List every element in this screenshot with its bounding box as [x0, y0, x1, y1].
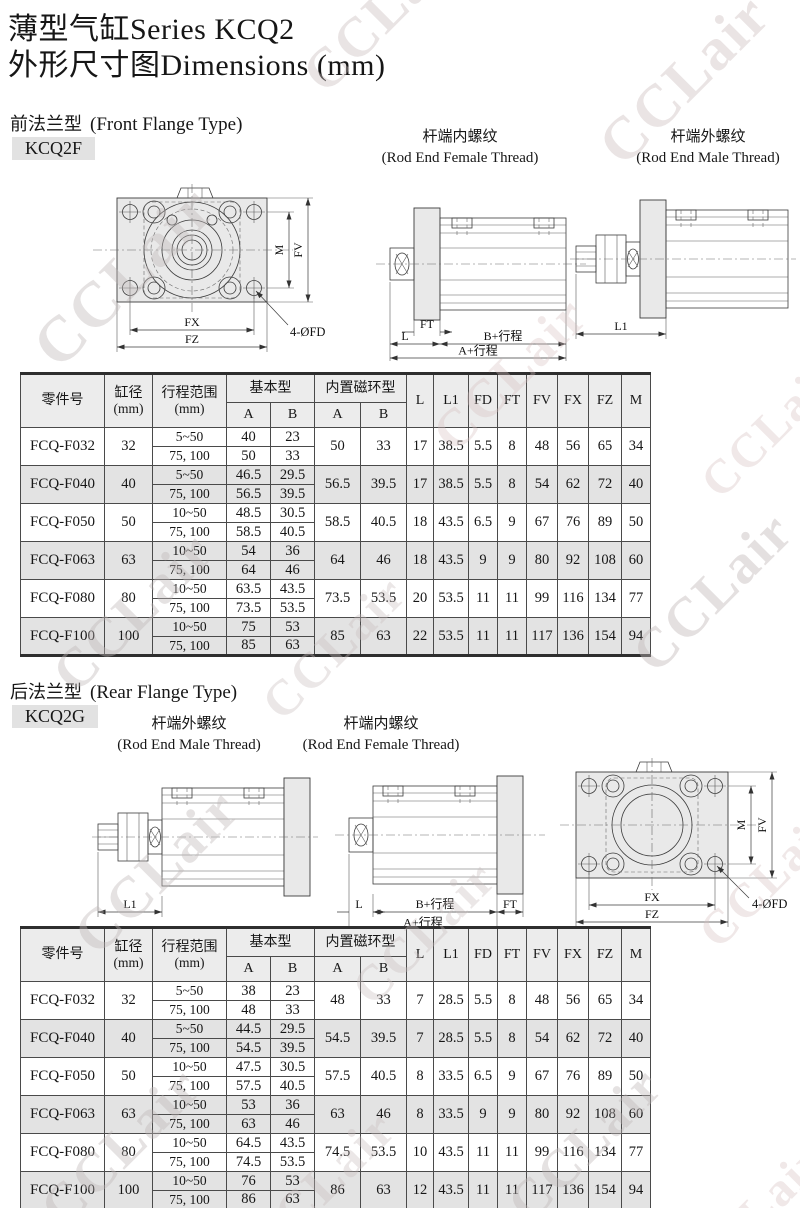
dim-value-cell: 40 [622, 1020, 651, 1058]
basic-b-cell: 39.5 [271, 1039, 315, 1058]
basic-b-cell: 63 [271, 637, 315, 656]
table-row: FCQ-F032325~5038234833728.55.5848566534 [21, 982, 651, 1001]
dim-value-cell: 11 [469, 1172, 498, 1208]
section2-heading: 后法兰型(Rear Flange Type) [10, 678, 237, 704]
table-row: FCQ-F0505010~5047.530.557.540.5833.56.59… [21, 1058, 651, 1077]
dim-value-cell: 11 [498, 1172, 527, 1208]
dim-value-cell: 60 [622, 542, 651, 580]
dim-value-cell: 50 [622, 1058, 651, 1096]
dimension-m: M [267, 212, 294, 288]
dim-value-cell: 10 [407, 1134, 434, 1172]
dim-value-cell: 77 [622, 1134, 651, 1172]
stroke-range-cell: 10~50 [153, 1134, 227, 1153]
dim-value-cell: 54 [527, 466, 558, 504]
col-header-basic-type: 基本型 [227, 374, 315, 403]
dim-label-a-stroke: A+行程 [458, 343, 497, 358]
basic-b-cell: 29.5 [271, 466, 315, 485]
section1-model-badge: KCQ2F [12, 137, 95, 160]
basic-b-cell: 30.5 [271, 504, 315, 523]
dim-label-fz: FZ [645, 907, 659, 921]
basic-a-cell: 64.5 [227, 1134, 271, 1153]
part-no-cell: FCQ-F100 [21, 1172, 105, 1208]
col-header-magnetic-type: 内置磁环型 [315, 374, 407, 403]
part-no-cell: FCQ-F100 [21, 618, 105, 656]
dim-value-cell: 6.5 [469, 1058, 498, 1096]
dim-value-cell: 8 [498, 982, 527, 1020]
stroke-range-cell: 5~50 [153, 1020, 227, 1039]
stroke-range-cell: 75, 100 [153, 599, 227, 618]
col-header-magnetic-type: 内置磁环型 [315, 928, 407, 957]
basic-b-cell: 46 [271, 1115, 315, 1134]
basic-a-cell: 73.5 [227, 599, 271, 618]
dim-value-cell: 65 [589, 982, 622, 1020]
dim-value-cell: 8 [498, 1020, 527, 1058]
col-header-basic-type: 基本型 [227, 928, 315, 957]
basic-b-cell: 29.5 [271, 1020, 315, 1039]
dim-value-cell: 5.5 [469, 428, 498, 466]
dim-value-cell: 99 [527, 1134, 558, 1172]
col-header-fx: FX [558, 928, 589, 982]
dim-value-cell: 108 [589, 542, 622, 580]
magnetic-a-cell: 54.5 [315, 1020, 361, 1058]
dim-value-cell: 94 [622, 1172, 651, 1208]
col-header-ft: FT [498, 928, 527, 982]
basic-b-cell: 40.5 [271, 1077, 315, 1096]
dim-value-cell: 8 [407, 1096, 434, 1134]
magnetic-b-cell: 63 [361, 1172, 407, 1208]
section2-caption-female: 杆端内螺纹 (Rod End Female Thread) [290, 714, 472, 756]
dim-value-cell: 34 [622, 428, 651, 466]
dim-value-cell: 28.5 [434, 1020, 469, 1058]
col-header-m: M [622, 374, 651, 428]
dim-label-fx: FX [184, 315, 200, 329]
stroke-range-cell: 10~50 [153, 1172, 227, 1191]
caption-cn: 杆端外螺纹 [620, 127, 796, 148]
table-row: FCQ-F0808010~5064.543.574.553.51043.5111… [21, 1134, 651, 1153]
basic-b-cell: 23 [271, 982, 315, 1001]
col-header-basic-a: A [227, 403, 271, 428]
table-row: FCQ-F0636310~50543664461843.599809210860 [21, 542, 651, 561]
stroke-range-cell: 75, 100 [153, 1191, 227, 1208]
dim-value-cell: 9 [498, 1058, 527, 1096]
bore-cell: 63 [105, 542, 153, 580]
front-flange-view-drawing: M FV FX FZ 4-ØFD [85, 184, 360, 364]
side-view-female-thread-drawing: FT L B+行程 A+行程 [372, 192, 590, 362]
col-header-fv: FV [527, 928, 558, 982]
dim-label-l: L [401, 329, 408, 343]
dim-value-cell: 12 [407, 1172, 434, 1208]
col-header-l: L [407, 374, 434, 428]
table-row: FCQ-F10010010~50755385632253.51111117136… [21, 618, 651, 637]
caption-cn: 杆端内螺纹 [290, 714, 472, 735]
bore-cell: 80 [105, 580, 153, 618]
section1-heading-cn: 前法兰型 [10, 114, 82, 134]
caption-en: (Rod End Male Thread) [100, 735, 278, 756]
front-flange-spec-table: 零件号 缸径(mm) 行程范围(mm) 基本型 内置磁环型 L L1 FD FT… [20, 372, 651, 657]
basic-b-cell: 39.5 [271, 485, 315, 504]
section2-heading-en: (Rear Flange Type) [90, 682, 237, 703]
dim-value-cell: 80 [527, 1096, 558, 1134]
dim-value-cell: 43.5 [434, 1172, 469, 1208]
dim-value-cell: 89 [589, 504, 622, 542]
stroke-range-cell: 75, 100 [153, 1115, 227, 1134]
basic-a-cell: 50 [227, 447, 271, 466]
dim-value-cell: 72 [589, 466, 622, 504]
dim-label-fz: FZ [185, 332, 199, 346]
dim-value-cell: 67 [527, 504, 558, 542]
rear-flange-spec-table: 零件号 缸径(mm) 行程范围(mm) 基本型 内置磁环型 L L1 FD FT… [20, 926, 651, 1208]
basic-a-cell: 46.5 [227, 466, 271, 485]
dim-value-cell: 22 [407, 618, 434, 656]
basic-b-cell: 30.5 [271, 1058, 315, 1077]
basic-a-cell: 53 [227, 1096, 271, 1115]
section2-caption-male: 杆端外螺纹 (Rod End Male Thread) [100, 714, 278, 756]
dim-value-cell: 8 [407, 1058, 434, 1096]
magnetic-a-cell: 58.5 [315, 504, 361, 542]
dim-value-cell: 116 [558, 1134, 589, 1172]
magnetic-a-cell: 50 [315, 428, 361, 466]
col-header-bore: 缸径(mm) [105, 928, 153, 982]
magnetic-a-cell: 48 [315, 982, 361, 1020]
basic-b-cell: 36 [271, 1096, 315, 1115]
section1-heading-en: (Front Flange Type) [90, 114, 242, 135]
basic-a-cell: 58.5 [227, 523, 271, 542]
dim-value-cell: 11 [498, 1134, 527, 1172]
dim-value-cell: 117 [527, 618, 558, 656]
rear-flange-view-drawing: M FV FX FZ 4-ØFD [556, 758, 800, 932]
col-header-part-no: 零件号 [21, 374, 105, 428]
basic-a-cell: 57.5 [227, 1077, 271, 1096]
dimension-a-stroke: A+行程 [390, 343, 566, 362]
dim-label-fd-callout: 4-ØFD [290, 325, 325, 339]
bore-cell: 63 [105, 1096, 153, 1134]
caption-cn: 杆端内螺纹 [372, 127, 548, 148]
table-header: 零件号 缸径(mm) 行程范围(mm) 基本型 内置磁环型 L L1 FD FT… [21, 374, 651, 428]
dim-value-cell: 43.5 [434, 504, 469, 542]
dim-value-cell: 11 [469, 1134, 498, 1172]
table-row: FCQ-F0808010~5063.543.573.553.52053.5111… [21, 580, 651, 599]
bore-cell: 80 [105, 1134, 153, 1172]
dim-value-cell: 43.5 [434, 542, 469, 580]
basic-a-cell: 64 [227, 561, 271, 580]
stroke-range-cell: 75, 100 [153, 447, 227, 466]
table-row: FCQ-F040405~5046.529.556.539.51738.55.58… [21, 466, 651, 485]
dim-value-cell: 9 [498, 542, 527, 580]
col-header-l1: L1 [434, 928, 469, 982]
watermark: CCLair [690, 348, 800, 509]
section1-caption-male: 杆端外螺纹 (Rod End Male Thread) [620, 127, 796, 169]
dimension-ft: FT [402, 317, 452, 336]
dimension-l1: L1 [98, 852, 162, 917]
magnetic-b-cell: 46 [361, 1096, 407, 1134]
dim-value-cell: 154 [589, 1172, 622, 1208]
part-no-cell: FCQ-F040 [21, 466, 105, 504]
basic-a-cell: 44.5 [227, 1020, 271, 1039]
magnetic-a-cell: 74.5 [315, 1134, 361, 1172]
col-header-magnetic-a: A [315, 957, 361, 982]
part-no-cell: FCQ-F040 [21, 1020, 105, 1058]
dim-value-cell: 17 [407, 466, 434, 504]
basic-a-cell: 54.5 [227, 1039, 271, 1058]
bore-cell: 100 [105, 1172, 153, 1208]
dim-value-cell: 117 [527, 1172, 558, 1208]
magnetic-b-cell: 53.5 [361, 580, 407, 618]
stroke-range-cell: 75, 100 [153, 1039, 227, 1058]
col-header-fz: FZ [589, 928, 622, 982]
stroke-range-cell: 75, 100 [153, 523, 227, 542]
stroke-range-cell: 75, 100 [153, 1001, 227, 1020]
dim-value-cell: 9 [469, 542, 498, 580]
bore-cell: 50 [105, 504, 153, 542]
dim-value-cell: 8 [498, 466, 527, 504]
dim-value-cell: 56 [558, 428, 589, 466]
stroke-range-cell: 10~50 [153, 504, 227, 523]
col-header-fd: FD [469, 374, 498, 428]
dim-value-cell: 5.5 [469, 1020, 498, 1058]
col-header-l: L [407, 928, 434, 982]
section2-heading-cn: 后法兰型 [10, 682, 82, 702]
stroke-range-cell: 5~50 [153, 982, 227, 1001]
basic-b-cell: 43.5 [271, 580, 315, 599]
bore-cell: 32 [105, 982, 153, 1020]
dim-value-cell: 5.5 [469, 466, 498, 504]
dim-value-cell: 76 [558, 1058, 589, 1096]
col-header-fv: FV [527, 374, 558, 428]
col-header-ft: FT [498, 374, 527, 428]
section2-model-badge: KCQ2G [12, 705, 98, 728]
stroke-range-cell: 10~50 [153, 1096, 227, 1115]
dim-value-cell: 33.5 [434, 1096, 469, 1134]
dim-label-b-stroke: B+行程 [484, 328, 523, 343]
magnetic-b-cell: 39.5 [361, 466, 407, 504]
catalog-page: CCLair CCLair CCLair CCLair CCLair CCLai… [0, 0, 800, 1208]
dim-value-cell: 136 [558, 618, 589, 656]
bore-cell: 50 [105, 1058, 153, 1096]
basic-a-cell: 40 [227, 428, 271, 447]
basic-b-cell: 63 [271, 1191, 315, 1208]
basic-a-cell: 63 [227, 1115, 271, 1134]
dim-value-cell: 50 [622, 504, 651, 542]
dim-value-cell: 134 [589, 1134, 622, 1172]
basic-b-cell: 53 [271, 618, 315, 637]
part-no-cell: FCQ-F032 [21, 428, 105, 466]
magnetic-b-cell: 33 [361, 982, 407, 1020]
dim-value-cell: 94 [622, 618, 651, 656]
page-title-line2: 外形尺寸图Dimensions (mm) [8, 40, 386, 84]
col-header-fd: FD [469, 928, 498, 982]
magnetic-a-cell: 63 [315, 1096, 361, 1134]
dim-label-b-stroke: B+行程 [416, 896, 455, 911]
basic-a-cell: 47.5 [227, 1058, 271, 1077]
table-row: FCQ-F032325~50402350331738.55.5848566534 [21, 428, 651, 447]
magnetic-b-cell: 40.5 [361, 1058, 407, 1096]
col-header-fx: FX [558, 374, 589, 428]
col-header-stroke: 行程范围(mm) [153, 928, 227, 982]
dim-value-cell: 7 [407, 1020, 434, 1058]
dim-value-cell: 134 [589, 580, 622, 618]
stroke-range-cell: 75, 100 [153, 637, 227, 656]
dim-value-cell: 11 [469, 580, 498, 618]
magnetic-a-cell: 64 [315, 542, 361, 580]
caption-cn: 杆端外螺纹 [100, 714, 278, 735]
part-no-cell: FCQ-F063 [21, 542, 105, 580]
dim-label-m: M [734, 819, 748, 830]
dim-value-cell: 6.5 [469, 504, 498, 542]
col-header-basic-b: B [271, 957, 315, 982]
part-no-cell: FCQ-F063 [21, 1096, 105, 1134]
basic-b-cell: 33 [271, 1001, 315, 1020]
dim-value-cell: 11 [498, 618, 527, 656]
col-header-l1: L1 [434, 374, 469, 428]
magnetic-b-cell: 39.5 [361, 1020, 407, 1058]
part-no-cell: FCQ-F050 [21, 1058, 105, 1096]
dim-value-cell: 54 [527, 1020, 558, 1058]
watermark: CCLair [675, 1133, 800, 1208]
basic-b-cell: 36 [271, 542, 315, 561]
dim-value-cell: 40 [622, 466, 651, 504]
dimension-b-stroke: B+行程 [373, 894, 497, 917]
dim-value-cell: 92 [558, 1096, 589, 1134]
stroke-range-cell: 75, 100 [153, 1153, 227, 1172]
part-no-cell: FCQ-F050 [21, 504, 105, 542]
dim-value-cell: 53.5 [434, 580, 469, 618]
section1-heading: 前法兰型(Front Flange Type) [10, 110, 242, 136]
dim-value-cell: 9 [498, 1096, 527, 1134]
dim-label-l: L [355, 897, 362, 911]
dim-label-m: M [272, 244, 286, 255]
basic-b-cell: 53 [271, 1172, 315, 1191]
basic-b-cell: 23 [271, 428, 315, 447]
col-header-basic-b: B [271, 403, 315, 428]
dim-label-fd-callout: 4-ØFD [752, 897, 787, 911]
dim-value-cell: 48 [527, 982, 558, 1020]
part-no-cell: FCQ-F080 [21, 1134, 105, 1172]
basic-a-cell: 86 [227, 1191, 271, 1208]
dim-value-cell: 20 [407, 580, 434, 618]
basic-b-cell: 53.5 [271, 1153, 315, 1172]
bore-cell: 40 [105, 1020, 153, 1058]
basic-a-cell: 63.5 [227, 580, 271, 599]
col-header-fz: FZ [589, 374, 622, 428]
stroke-range-cell: 10~50 [153, 580, 227, 599]
dimension-ft: FT [497, 894, 523, 917]
dim-value-cell: 62 [558, 466, 589, 504]
dim-label-l1: L1 [614, 319, 627, 333]
col-header-stroke: 行程范围(mm) [153, 374, 227, 428]
section1-caption-female: 杆端内螺纹 (Rod End Female Thread) [372, 127, 548, 169]
dim-label-l1: L1 [123, 897, 136, 911]
table-row: FCQ-F0636310~5053366346833.599809210860 [21, 1096, 651, 1115]
table-header: 零件号 缸径(mm) 行程范围(mm) 基本型 内置磁环型 L L1 FD FT… [21, 928, 651, 982]
dim-value-cell: 5.5 [469, 982, 498, 1020]
magnetic-a-cell: 56.5 [315, 466, 361, 504]
col-header-magnetic-b: B [361, 403, 407, 428]
dim-value-cell: 48 [527, 428, 558, 466]
dim-value-cell: 67 [527, 1058, 558, 1096]
magnetic-b-cell: 46 [361, 542, 407, 580]
dim-value-cell: 38.5 [434, 466, 469, 504]
dimension-l: L [337, 854, 385, 917]
dim-label-ft: FT [420, 317, 435, 331]
caption-en: (Rod End Male Thread) [620, 148, 796, 169]
magnetic-b-cell: 53.5 [361, 1134, 407, 1172]
basic-b-cell: 43.5 [271, 1134, 315, 1153]
dim-label-fv: FV [755, 817, 769, 833]
dim-value-cell: 11 [498, 580, 527, 618]
dim-value-cell: 99 [527, 580, 558, 618]
bore-cell: 40 [105, 466, 153, 504]
dim-value-cell: 65 [589, 428, 622, 466]
dim-value-cell: 17 [407, 428, 434, 466]
stroke-range-cell: 75, 100 [153, 1077, 227, 1096]
dim-label-ft: FT [503, 897, 518, 911]
col-header-magnetic-b: B [361, 957, 407, 982]
basic-a-cell: 56.5 [227, 485, 271, 504]
dim-value-cell: 108 [589, 1096, 622, 1134]
caption-en: (Rod End Female Thread) [372, 148, 548, 169]
stroke-range-cell: 75, 100 [153, 561, 227, 580]
dim-value-cell: 72 [589, 1020, 622, 1058]
magnetic-a-cell: 57.5 [315, 1058, 361, 1096]
dim-value-cell: 18 [407, 542, 434, 580]
rear-flange-side-view-female-thread-drawing: L B+行程 FT A+行程 [335, 764, 550, 936]
stroke-range-cell: 5~50 [153, 428, 227, 447]
basic-b-cell: 53.5 [271, 599, 315, 618]
magnetic-b-cell: 63 [361, 618, 407, 656]
basic-a-cell: 48 [227, 1001, 271, 1020]
stroke-range-cell: 10~50 [153, 618, 227, 637]
dim-value-cell: 33.5 [434, 1058, 469, 1096]
dim-value-cell: 62 [558, 1020, 589, 1058]
bore-cell: 100 [105, 618, 153, 656]
part-no-cell: FCQ-F080 [21, 580, 105, 618]
col-header-bore: 缸径(mm) [105, 374, 153, 428]
dim-value-cell: 56 [558, 982, 589, 1020]
dim-value-cell: 116 [558, 580, 589, 618]
part-no-cell: FCQ-F032 [21, 982, 105, 1020]
dim-value-cell: 76 [558, 504, 589, 542]
dim-value-cell: 92 [558, 542, 589, 580]
dim-value-cell: 53.5 [434, 618, 469, 656]
basic-a-cell: 74.5 [227, 1153, 271, 1172]
stroke-range-cell: 5~50 [153, 466, 227, 485]
dim-value-cell: 38.5 [434, 428, 469, 466]
caption-en: (Rod End Female Thread) [290, 735, 472, 756]
dim-value-cell: 18 [407, 504, 434, 542]
dim-value-cell: 43.5 [434, 1134, 469, 1172]
table-row: FCQ-F10010010~50765386631243.51111117136… [21, 1172, 651, 1191]
dim-value-cell: 9 [469, 1096, 498, 1134]
dim-value-cell: 28.5 [434, 982, 469, 1020]
table-row: FCQ-F040405~5044.529.554.539.5728.55.585… [21, 1020, 651, 1039]
dim-value-cell: 34 [622, 982, 651, 1020]
dim-value-cell: 7 [407, 982, 434, 1020]
basic-a-cell: 38 [227, 982, 271, 1001]
col-header-basic-a: A [227, 957, 271, 982]
dim-value-cell: 80 [527, 542, 558, 580]
col-header-magnetic-a: A [315, 403, 361, 428]
stroke-range-cell: 10~50 [153, 1058, 227, 1077]
bore-cell: 32 [105, 428, 153, 466]
magnetic-b-cell: 33 [361, 428, 407, 466]
side-view-male-thread-drawing: L1 [570, 188, 800, 348]
dim-value-cell: 60 [622, 1096, 651, 1134]
basic-a-cell: 54 [227, 542, 271, 561]
magnetic-a-cell: 86 [315, 1172, 361, 1208]
basic-a-cell: 48.5 [227, 504, 271, 523]
dim-label-fx: FX [644, 890, 660, 904]
magnetic-a-cell: 85 [315, 618, 361, 656]
